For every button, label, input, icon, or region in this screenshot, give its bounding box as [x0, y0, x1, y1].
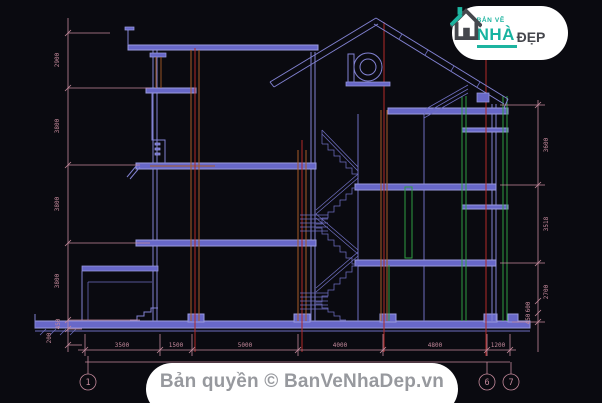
section-drawing: 2900 3800 3800 3800 450 200 3600 3518 27…	[0, 0, 602, 403]
dim-label: 200	[46, 332, 53, 343]
staircase	[300, 130, 358, 320]
dim-label: 4000	[333, 342, 348, 349]
copyright-text: Bản quyền © BanVeNhaDep.vn	[160, 371, 444, 393]
stair-stack-lower	[300, 293, 328, 309]
water-tank	[346, 53, 390, 86]
upper-terrace-railing	[150, 53, 166, 88]
gutter	[477, 93, 489, 102]
dim-label: 4800	[428, 342, 443, 349]
dim-label: 3518	[543, 216, 550, 231]
dim-label: 1500	[169, 342, 184, 349]
entry-steps	[130, 308, 158, 320]
dim-label: 450	[525, 313, 532, 324]
grid-bubble-label: 1	[85, 378, 90, 388]
dim-label: 3800	[54, 273, 61, 288]
floor-slabs	[128, 45, 508, 266]
dim-label: 600	[525, 301, 532, 312]
dim-label: 3800	[54, 196, 61, 211]
ground	[35, 314, 530, 331]
dimension-chain-bottom: 3500 1500 5000 4000 4800 1200	[78, 334, 516, 362]
grid-bubble-label: 7	[508, 378, 513, 388]
left-parapet	[125, 27, 134, 45]
dim-label: 5000	[238, 342, 253, 349]
house-icon	[450, 6, 482, 42]
mid-parapet	[152, 93, 165, 163]
dimension-chain-left: 2900 3800 3800 3800 450 200	[46, 18, 150, 352]
grid-bubble-label: 6	[484, 378, 489, 388]
logo-text-name: NHÀ	[477, 26, 515, 43]
dim-label: 1200	[491, 342, 506, 349]
logo-underline	[477, 45, 517, 48]
dim-label: 2700	[543, 284, 550, 299]
dim-label: 450	[55, 318, 62, 329]
logo-text-suffix: ĐẸP	[517, 29, 546, 45]
dim-label: 3600	[543, 137, 550, 152]
dim-label: 3500	[115, 342, 130, 349]
brand-logo: BẢN VẼ NHÀ ĐẸP	[452, 6, 568, 60]
dim-label: 3800	[54, 118, 61, 133]
cad-screenshot: 2900 3800 3800 3800 450 200 3600 3518 27…	[0, 0, 602, 403]
dim-label: 2900	[54, 52, 61, 67]
stair-stack-upper	[300, 215, 328, 231]
porch	[82, 266, 158, 321]
copyright-watermark: Bản quyền © BanVeNhaDep.vn	[146, 363, 458, 403]
